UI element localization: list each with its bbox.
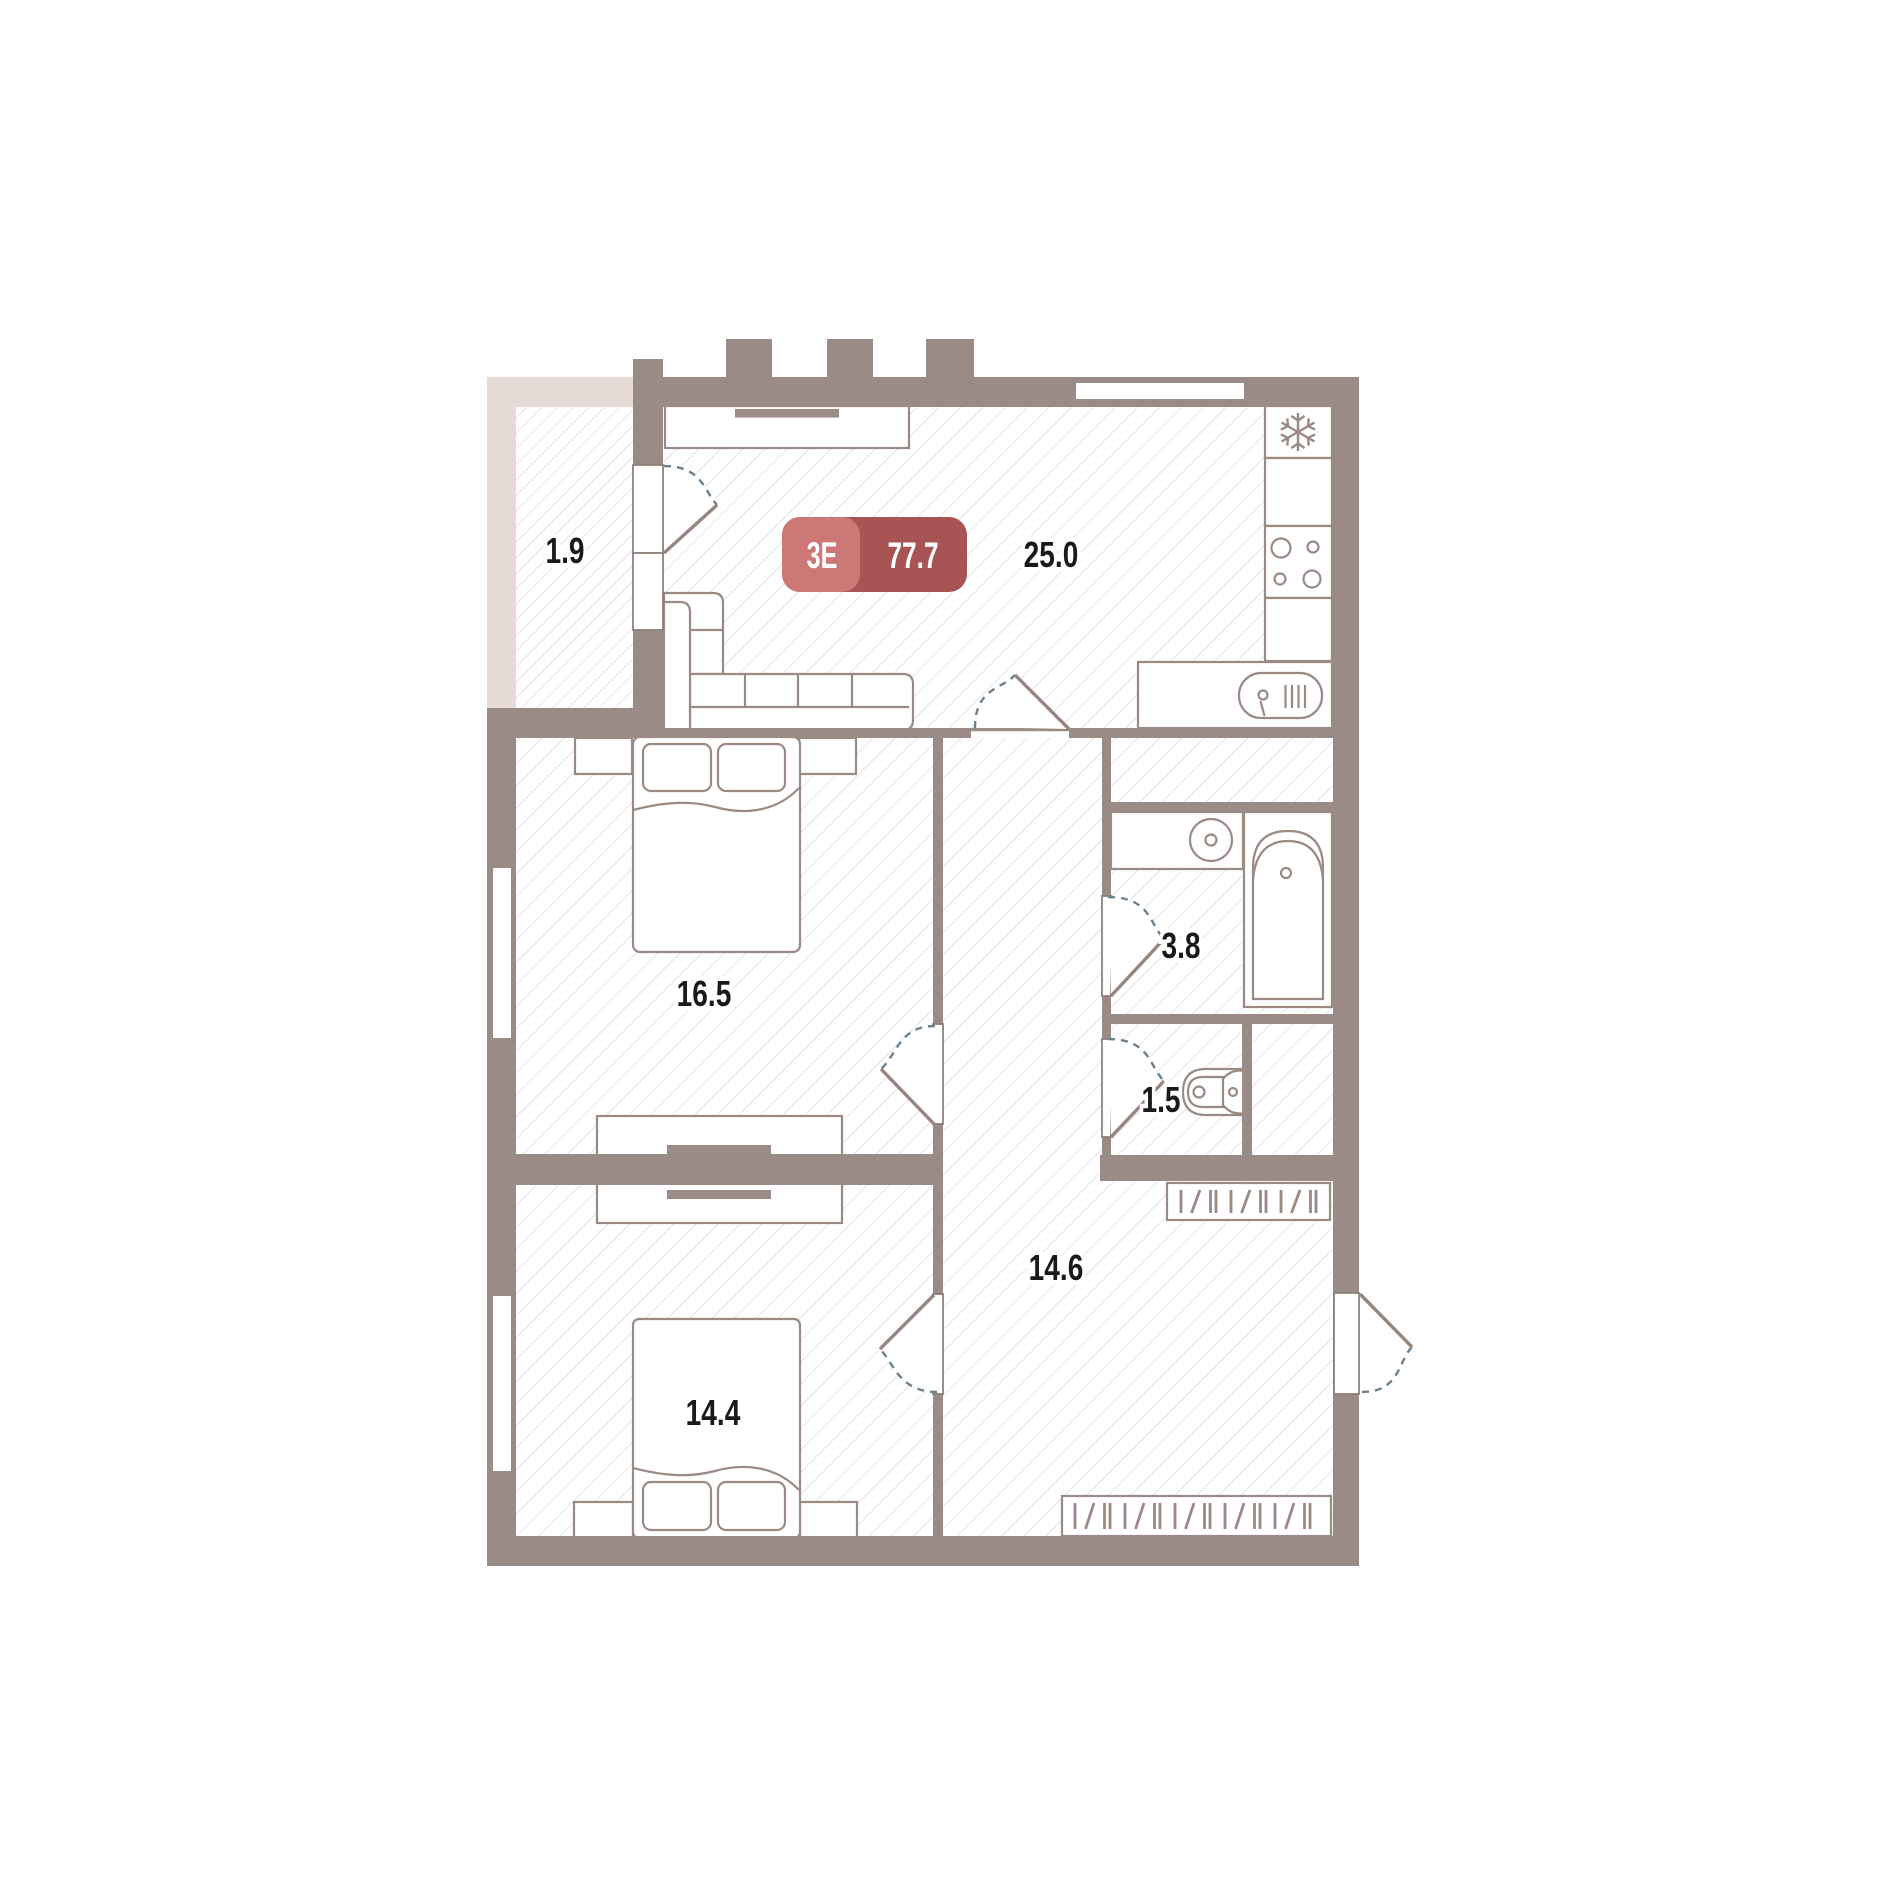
svg-text:16.5: 16.5: [677, 974, 732, 1014]
svg-text:3.8: 3.8: [1161, 926, 1200, 966]
svg-text:3Е: 3Е: [807, 534, 838, 576]
svg-text:25.0: 25.0: [1024, 535, 1079, 575]
svg-text:14.6: 14.6: [1029, 1248, 1084, 1288]
svg-text:1.9: 1.9: [545, 531, 584, 571]
svg-text:77.7: 77.7: [887, 535, 938, 577]
svg-text:14.4: 14.4: [686, 1393, 741, 1433]
svg-text:1.5: 1.5: [1141, 1080, 1180, 1120]
